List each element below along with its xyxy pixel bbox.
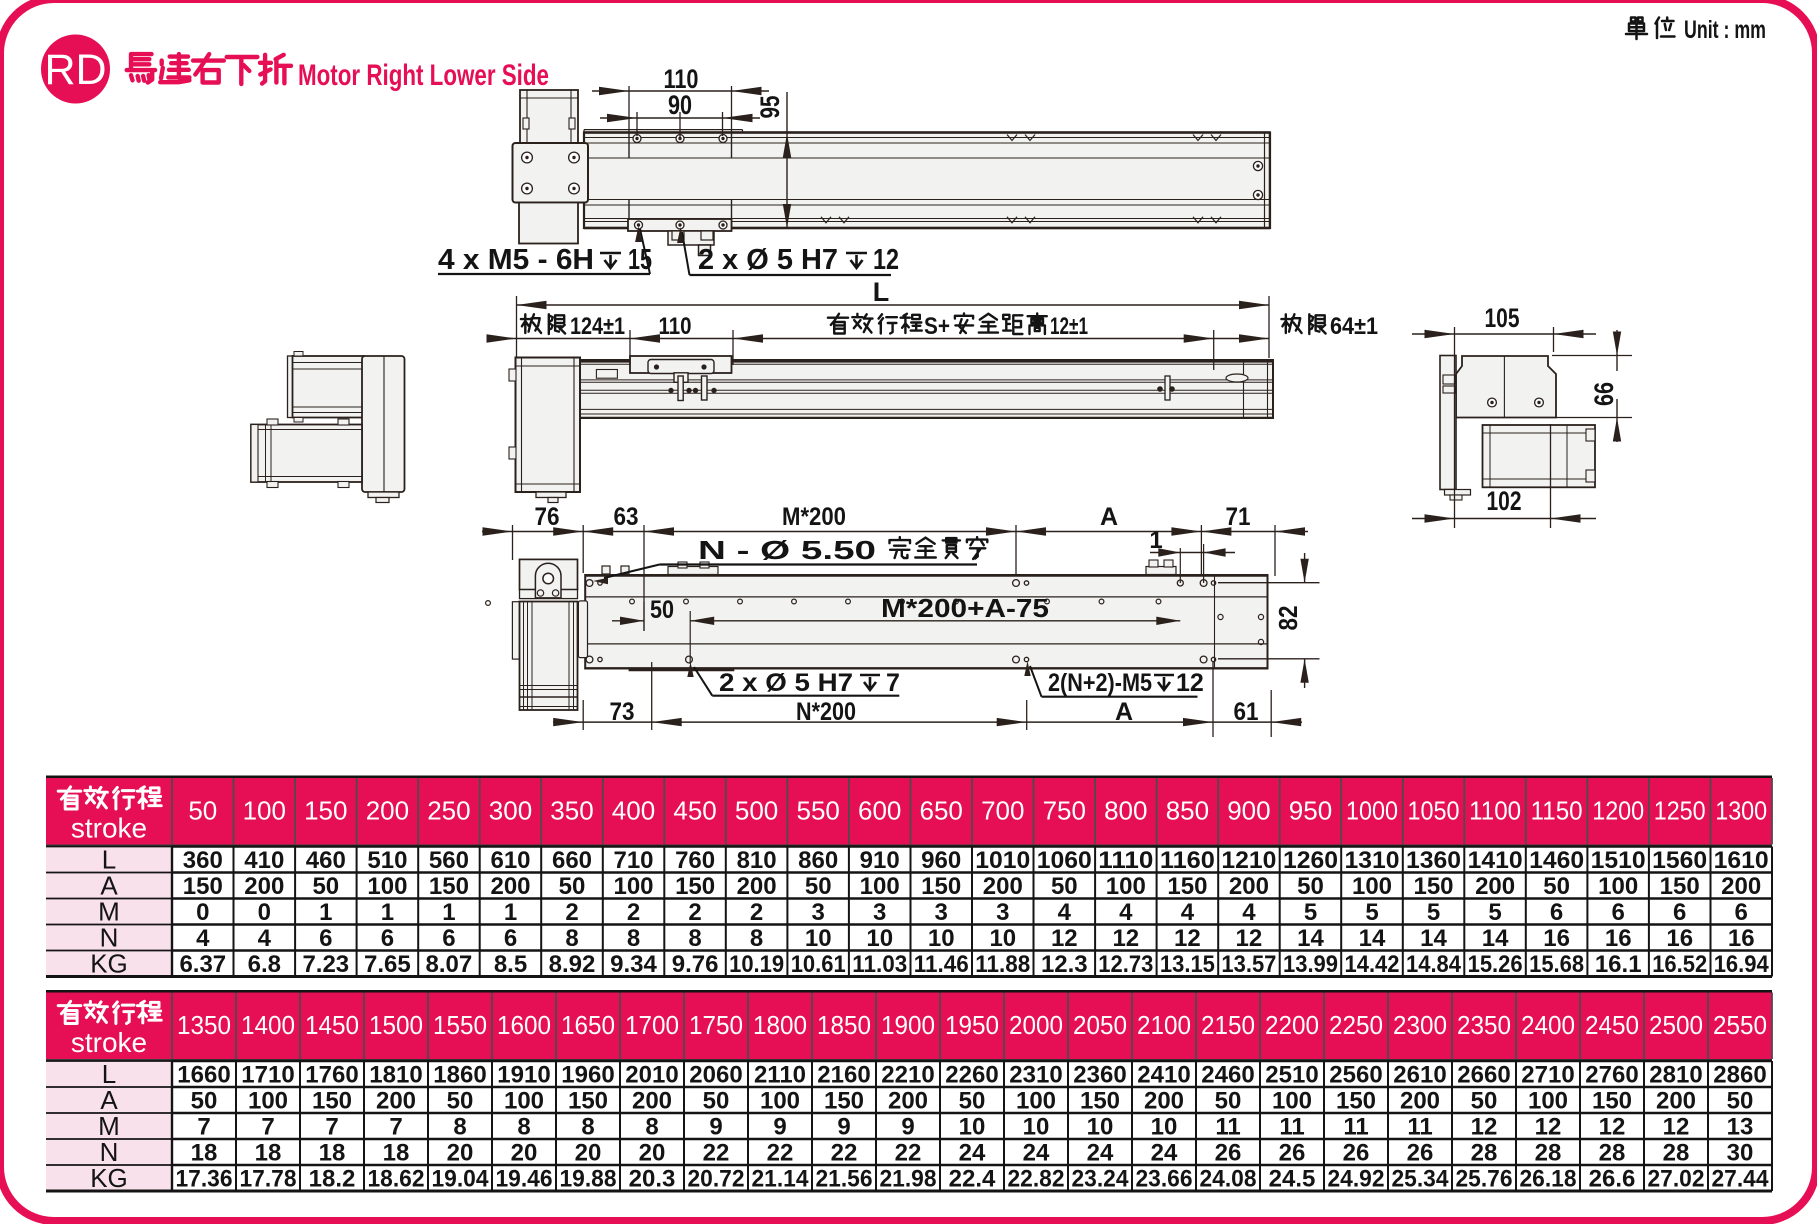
svg-text:14: 14	[1297, 925, 1324, 952]
svg-text:300: 300	[489, 796, 532, 826]
svg-text:2610: 2610	[1393, 1062, 1446, 1089]
svg-text:1150: 1150	[1531, 796, 1583, 826]
svg-text:23.24: 23.24	[1072, 1166, 1130, 1193]
svg-text:23.66: 23.66	[1136, 1166, 1193, 1193]
svg-text:2210: 2210	[881, 1062, 934, 1089]
svg-text:24: 24	[959, 1140, 986, 1167]
svg-text:1110: 1110	[1098, 847, 1153, 874]
svg-text:14.84: 14.84	[1406, 951, 1462, 978]
svg-text:12.73: 12.73	[1098, 951, 1153, 978]
svg-text:0: 0	[258, 899, 271, 926]
svg-text:14: 14	[1359, 925, 1386, 952]
svg-text:1700: 1700	[625, 1010, 679, 1040]
svg-text:500: 500	[735, 796, 778, 826]
svg-text:50: 50	[1051, 873, 1078, 900]
svg-text:1500: 1500	[369, 1010, 423, 1040]
svg-text:4: 4	[1058, 899, 1072, 926]
svg-text:1860: 1860	[433, 1062, 486, 1089]
svg-text:0: 0	[196, 899, 209, 926]
svg-text:2 x Ø 5 H7: 2 x Ø 5 H7	[698, 244, 838, 276]
svg-text:2760: 2760	[1585, 1062, 1638, 1089]
svg-text:200: 200	[490, 873, 530, 900]
svg-text:1710: 1710	[241, 1062, 294, 1089]
svg-text:2: 2	[688, 899, 701, 926]
svg-text:100: 100	[860, 873, 900, 900]
svg-text:11: 11	[1279, 1114, 1304, 1141]
svg-text:850: 850	[1166, 796, 1209, 826]
svg-text:2: 2	[565, 899, 578, 926]
svg-text:1: 1	[442, 899, 455, 926]
svg-text:3: 3	[935, 899, 948, 926]
svg-text:22: 22	[767, 1140, 794, 1167]
svg-text:8: 8	[627, 925, 640, 952]
svg-text:10.61: 10.61	[791, 951, 846, 978]
svg-text:11: 11	[1343, 1114, 1368, 1141]
svg-text:8: 8	[645, 1114, 658, 1141]
svg-text:3: 3	[873, 899, 886, 926]
svg-text:24.5: 24.5	[1269, 1166, 1316, 1193]
svg-text:7: 7	[325, 1114, 338, 1141]
svg-text:95: 95	[755, 96, 785, 119]
svg-text:25.34: 25.34	[1392, 1166, 1450, 1193]
svg-text:8.5: 8.5	[494, 951, 527, 978]
svg-text:12: 12	[1236, 925, 1263, 952]
svg-text:200: 200	[632, 1088, 672, 1115]
svg-text:4: 4	[1119, 899, 1133, 926]
svg-text:960: 960	[921, 847, 961, 874]
svg-text:150: 150	[1167, 873, 1207, 900]
svg-text:16.52: 16.52	[1652, 951, 1707, 978]
svg-text:2450: 2450	[1585, 1010, 1639, 1040]
svg-text:21.98: 21.98	[880, 1166, 937, 1193]
svg-text:650: 650	[920, 796, 963, 826]
svg-text:1: 1	[319, 899, 332, 926]
svg-text:400: 400	[612, 796, 655, 826]
svg-text:66: 66	[1589, 382, 1619, 406]
svg-text:200: 200	[1229, 873, 1269, 900]
svg-text:600: 600	[858, 796, 901, 826]
svg-text:26: 26	[1343, 1140, 1370, 1167]
svg-text:100: 100	[243, 796, 286, 826]
svg-text:950: 950	[1289, 796, 1332, 826]
svg-text:9.34: 9.34	[610, 951, 657, 978]
svg-text:24: 24	[1151, 1140, 1178, 1167]
svg-text:150: 150	[304, 796, 347, 826]
svg-text:1300: 1300	[1715, 796, 1767, 826]
svg-text:2060: 2060	[689, 1062, 742, 1089]
svg-text:100: 100	[1272, 1088, 1312, 1115]
svg-text:6: 6	[442, 925, 455, 952]
svg-text:61: 61	[1234, 698, 1259, 726]
svg-text:1: 1	[381, 899, 394, 926]
svg-text:1010: 1010	[975, 847, 1030, 874]
svg-text:410: 410	[244, 847, 284, 874]
svg-text:1: 1	[1149, 527, 1162, 554]
svg-text:360: 360	[183, 847, 223, 874]
svg-text:12: 12	[1051, 925, 1078, 952]
svg-text:50: 50	[1727, 1088, 1754, 1115]
svg-text:17.36: 17.36	[176, 1166, 233, 1193]
svg-text:5: 5	[1488, 899, 1501, 926]
svg-text:8: 8	[517, 1114, 530, 1141]
svg-text:4: 4	[196, 925, 210, 952]
svg-text:150: 150	[1413, 873, 1453, 900]
svg-text:760: 760	[675, 847, 715, 874]
svg-text:8: 8	[581, 1114, 594, 1141]
svg-text:2300: 2300	[1393, 1010, 1447, 1040]
svg-text:1200: 1200	[1592, 796, 1644, 826]
svg-text:100: 100	[613, 873, 653, 900]
svg-text:200: 200	[1721, 873, 1761, 900]
svg-text:1650: 1650	[561, 1010, 615, 1040]
svg-text:8: 8	[750, 925, 763, 952]
svg-text:8.92: 8.92	[549, 951, 596, 978]
svg-text:6: 6	[1673, 899, 1686, 926]
svg-text:2260: 2260	[945, 1062, 998, 1089]
svg-text:1610: 1610	[1714, 847, 1769, 874]
svg-text:12: 12	[1471, 1114, 1498, 1141]
svg-text:2350: 2350	[1457, 1010, 1511, 1040]
svg-text:1560: 1560	[1652, 847, 1707, 874]
svg-text:2050: 2050	[1073, 1010, 1127, 1040]
svg-text:2860: 2860	[1713, 1062, 1766, 1089]
svg-text:15.26: 15.26	[1468, 951, 1523, 978]
svg-text:16: 16	[1728, 925, 1755, 952]
svg-text:16: 16	[1605, 925, 1632, 952]
svg-text:100: 100	[504, 1088, 544, 1115]
svg-text:12: 12	[1599, 1114, 1626, 1141]
svg-text:2000: 2000	[1009, 1010, 1063, 1040]
svg-text:1460: 1460	[1529, 847, 1584, 874]
svg-text:1060: 1060	[1037, 847, 1092, 874]
svg-text:18.2: 18.2	[309, 1166, 356, 1193]
svg-text:26.18: 26.18	[1520, 1166, 1577, 1193]
svg-text:30: 30	[1727, 1140, 1754, 1167]
svg-text:22.4: 22.4	[949, 1166, 996, 1193]
svg-text:200: 200	[888, 1088, 928, 1115]
svg-text:250: 250	[427, 796, 470, 826]
svg-text:200: 200	[1475, 873, 1515, 900]
svg-text:1210: 1210	[1221, 847, 1276, 874]
svg-text:13.15: 13.15	[1160, 951, 1215, 978]
svg-text:1660: 1660	[177, 1062, 230, 1089]
svg-text:2660: 2660	[1457, 1062, 1510, 1089]
svg-text:N - Ø 5.50: N - Ø 5.50	[698, 535, 876, 565]
svg-text:150: 150	[312, 1088, 352, 1115]
svg-text:6: 6	[1612, 899, 1625, 926]
svg-text:1810: 1810	[369, 1062, 422, 1089]
svg-text:150: 150	[1592, 1088, 1632, 1115]
svg-text:50: 50	[1471, 1088, 1498, 1115]
svg-text:6: 6	[1550, 899, 1563, 926]
svg-text:200: 200	[1400, 1088, 1440, 1115]
svg-text:50: 50	[650, 596, 674, 624]
svg-text:1800: 1800	[753, 1010, 807, 1040]
svg-text:150: 150	[1660, 873, 1700, 900]
svg-text:M*200+A-75: M*200+A-75	[881, 593, 1049, 623]
svg-text:4: 4	[1181, 899, 1195, 926]
svg-text:150: 150	[568, 1088, 608, 1115]
svg-text:11: 11	[1407, 1114, 1432, 1141]
svg-text:150: 150	[183, 873, 223, 900]
svg-text:12.3: 12.3	[1041, 951, 1088, 978]
svg-text:A: A	[1115, 698, 1133, 726]
svg-text:7: 7	[886, 669, 900, 697]
svg-text:14.42: 14.42	[1345, 951, 1400, 978]
svg-text:20.3: 20.3	[629, 1166, 676, 1193]
svg-text:71: 71	[1226, 503, 1251, 531]
svg-text:100: 100	[367, 873, 407, 900]
svg-text:150: 150	[921, 873, 961, 900]
svg-text:22.82: 22.82	[1008, 1166, 1065, 1193]
svg-text:2310: 2310	[1009, 1062, 1062, 1089]
svg-text:100: 100	[1528, 1088, 1568, 1115]
svg-text:2250: 2250	[1329, 1010, 1383, 1040]
svg-text:18: 18	[383, 1140, 410, 1167]
svg-text:50: 50	[188, 796, 217, 826]
svg-text:660: 660	[552, 847, 592, 874]
svg-text:20: 20	[447, 1140, 474, 1167]
svg-text:2150: 2150	[1201, 1010, 1255, 1040]
svg-text:12: 12	[1112, 925, 1139, 952]
svg-text:22: 22	[895, 1140, 922, 1167]
svg-text:1050: 1050	[1408, 796, 1460, 826]
svg-text:3: 3	[996, 899, 1009, 926]
svg-text:460: 460	[306, 847, 346, 874]
svg-text:11.88: 11.88	[975, 951, 1030, 978]
svg-text:200: 200	[1656, 1088, 1696, 1115]
svg-text:28: 28	[1535, 1140, 1562, 1167]
svg-text:1910: 1910	[497, 1062, 550, 1089]
svg-text:9.76: 9.76	[672, 951, 719, 978]
svg-text:1350: 1350	[177, 1010, 231, 1040]
svg-text:82: 82	[1273, 606, 1303, 631]
svg-text:8: 8	[453, 1114, 466, 1141]
svg-text:750: 750	[1043, 796, 1086, 826]
svg-text:17.78: 17.78	[240, 1166, 297, 1193]
svg-text:150: 150	[824, 1088, 864, 1115]
svg-text:14: 14	[1420, 925, 1447, 952]
svg-text:90: 90	[668, 90, 692, 120]
svg-text:150: 150	[1080, 1088, 1120, 1115]
svg-text:150: 150	[675, 873, 715, 900]
svg-text:stroke: stroke	[71, 1027, 147, 1058]
svg-text:RD: RD	[44, 46, 106, 94]
svg-text:510: 510	[367, 847, 407, 874]
svg-text:KG: KG	[90, 1163, 128, 1193]
svg-text:10: 10	[805, 925, 832, 952]
svg-text:10: 10	[928, 925, 955, 952]
svg-text:50: 50	[559, 873, 586, 900]
svg-text:1750: 1750	[689, 1010, 743, 1040]
svg-text:stroke: stroke	[71, 813, 147, 844]
svg-text:50: 50	[1297, 873, 1324, 900]
svg-text:6: 6	[504, 925, 517, 952]
svg-text:1600: 1600	[497, 1010, 551, 1040]
svg-text:2110: 2110	[754, 1062, 806, 1089]
svg-text:10: 10	[1023, 1114, 1050, 1141]
svg-text:150: 150	[429, 873, 469, 900]
svg-text:810: 810	[737, 847, 777, 874]
svg-text:Motor Right Lower Side: Motor Right Lower Side	[298, 59, 549, 92]
svg-text:20: 20	[575, 1140, 602, 1167]
svg-text:26.6: 26.6	[1589, 1166, 1636, 1193]
svg-text:2810: 2810	[1649, 1062, 1702, 1089]
svg-text:13.99: 13.99	[1283, 951, 1338, 978]
svg-text:63: 63	[614, 503, 639, 531]
svg-text:11.03: 11.03	[852, 951, 907, 978]
svg-text:200: 200	[376, 1088, 416, 1115]
svg-text:1160: 1160	[1160, 847, 1215, 874]
svg-text:10: 10	[1087, 1114, 1114, 1141]
svg-text:2: 2	[750, 899, 763, 926]
svg-text:900: 900	[1227, 796, 1270, 826]
svg-text:124±1: 124±1	[570, 313, 625, 340]
svg-text:N*200: N*200	[796, 698, 856, 726]
svg-text:1850: 1850	[817, 1010, 871, 1040]
svg-text:1360: 1360	[1406, 847, 1461, 874]
svg-text:3: 3	[812, 899, 825, 926]
svg-text:13: 13	[1727, 1114, 1754, 1141]
svg-text:50: 50	[191, 1088, 218, 1115]
svg-text:50: 50	[805, 873, 832, 900]
svg-text:19.46: 19.46	[496, 1166, 553, 1193]
svg-text:4 x M5 - 6H: 4 x M5 - 6H	[438, 244, 594, 276]
svg-text:5: 5	[1427, 899, 1440, 926]
svg-text:2 x Ø 5 H7: 2 x Ø 5 H7	[719, 669, 853, 697]
svg-text:M*200: M*200	[782, 503, 846, 531]
svg-text:10: 10	[959, 1114, 986, 1141]
svg-text:26: 26	[1407, 1140, 1434, 1167]
svg-text:24: 24	[1087, 1140, 1114, 1167]
svg-text:9: 9	[837, 1114, 850, 1141]
svg-text:4: 4	[258, 925, 272, 952]
svg-text:200: 200	[1144, 1088, 1184, 1115]
svg-text:50: 50	[1215, 1088, 1242, 1115]
svg-text:9: 9	[773, 1114, 786, 1141]
svg-text:16: 16	[1666, 925, 1693, 952]
svg-text:7: 7	[261, 1114, 274, 1141]
svg-text:7.23: 7.23	[302, 951, 349, 978]
svg-text:102: 102	[1487, 486, 1522, 516]
svg-text:Unit : mm: Unit : mm	[1684, 16, 1766, 44]
svg-text:4: 4	[1242, 899, 1256, 926]
svg-text:5: 5	[1304, 899, 1317, 926]
svg-text:27.02: 27.02	[1648, 1166, 1705, 1193]
svg-text:22: 22	[831, 1140, 858, 1167]
svg-text:2: 2	[627, 899, 640, 926]
svg-text:14: 14	[1482, 925, 1509, 952]
svg-text:16.1: 16.1	[1595, 951, 1642, 978]
svg-text:1900: 1900	[881, 1010, 935, 1040]
svg-text:1510: 1510	[1591, 847, 1646, 874]
svg-text:KG: KG	[90, 949, 128, 979]
svg-text:10: 10	[1151, 1114, 1178, 1141]
svg-text:100: 100	[760, 1088, 800, 1115]
svg-text:20: 20	[511, 1140, 538, 1167]
svg-text:24.08: 24.08	[1200, 1166, 1257, 1193]
svg-text:2410: 2410	[1137, 1062, 1190, 1089]
svg-text:105: 105	[1485, 303, 1520, 333]
svg-text:2460: 2460	[1201, 1062, 1254, 1089]
svg-text:200: 200	[366, 796, 409, 826]
svg-text:2560: 2560	[1329, 1062, 1382, 1089]
svg-text:150: 150	[1336, 1088, 1376, 1115]
svg-text:100: 100	[1016, 1088, 1056, 1115]
svg-text:200: 200	[244, 873, 284, 900]
svg-text:50: 50	[703, 1088, 730, 1115]
svg-text:9: 9	[901, 1114, 914, 1141]
svg-text:800: 800	[1104, 796, 1147, 826]
svg-text:1950: 1950	[945, 1010, 999, 1040]
svg-text:1760: 1760	[305, 1062, 358, 1089]
svg-text:9: 9	[709, 1114, 722, 1141]
svg-text:6.37: 6.37	[179, 951, 226, 978]
svg-text:1450: 1450	[305, 1010, 359, 1040]
svg-text:12: 12	[1663, 1114, 1690, 1141]
svg-text:10: 10	[989, 925, 1016, 952]
svg-text:21.14: 21.14	[752, 1166, 810, 1193]
svg-text:20.72: 20.72	[688, 1166, 745, 1193]
svg-text:26: 26	[1215, 1140, 1242, 1167]
svg-text:7: 7	[389, 1114, 402, 1141]
svg-text:26: 26	[1279, 1140, 1306, 1167]
svg-text:13.57: 13.57	[1221, 951, 1276, 978]
svg-text:110: 110	[659, 313, 692, 340]
svg-text:2550: 2550	[1713, 1010, 1767, 1040]
svg-text:6: 6	[381, 925, 394, 952]
svg-text:350: 350	[550, 796, 593, 826]
svg-text:1960: 1960	[561, 1062, 614, 1089]
svg-text:18: 18	[255, 1140, 282, 1167]
svg-text:19.04: 19.04	[432, 1166, 490, 1193]
svg-text:A: A	[1100, 503, 1118, 531]
svg-text:50: 50	[1543, 873, 1570, 900]
svg-text:1410: 1410	[1468, 847, 1523, 874]
svg-text:1550: 1550	[433, 1010, 487, 1040]
svg-text:2360: 2360	[1073, 1062, 1126, 1089]
svg-text:2500: 2500	[1649, 1010, 1703, 1040]
svg-text:16: 16	[1543, 925, 1570, 952]
svg-text:2100: 2100	[1137, 1010, 1191, 1040]
svg-text:610: 610	[490, 847, 530, 874]
svg-text:860: 860	[798, 847, 838, 874]
svg-text:560: 560	[429, 847, 469, 874]
svg-text:16.94: 16.94	[1714, 951, 1770, 978]
svg-text:18.62: 18.62	[368, 1166, 425, 1193]
svg-text:8: 8	[688, 925, 701, 952]
svg-text:700: 700	[981, 796, 1024, 826]
svg-text:19.88: 19.88	[560, 1166, 617, 1193]
svg-text:100: 100	[248, 1088, 288, 1115]
svg-text:6: 6	[1735, 899, 1748, 926]
svg-text:15.68: 15.68	[1529, 951, 1584, 978]
svg-text:10.19: 10.19	[729, 951, 784, 978]
svg-text:64±1: 64±1	[1330, 313, 1378, 340]
svg-text:1400: 1400	[241, 1010, 295, 1040]
svg-text:11: 11	[1215, 1114, 1240, 1141]
svg-text:12: 12	[1176, 669, 1204, 697]
svg-text:50: 50	[312, 873, 339, 900]
svg-text:2710: 2710	[1521, 1062, 1574, 1089]
svg-text:100: 100	[1352, 873, 1392, 900]
svg-text:2010: 2010	[625, 1062, 678, 1089]
svg-text:12: 12	[1535, 1114, 1562, 1141]
svg-text:2510: 2510	[1265, 1062, 1318, 1089]
svg-text:11.46: 11.46	[914, 951, 969, 978]
svg-text:2160: 2160	[817, 1062, 870, 1089]
svg-text:12: 12	[1174, 925, 1201, 952]
